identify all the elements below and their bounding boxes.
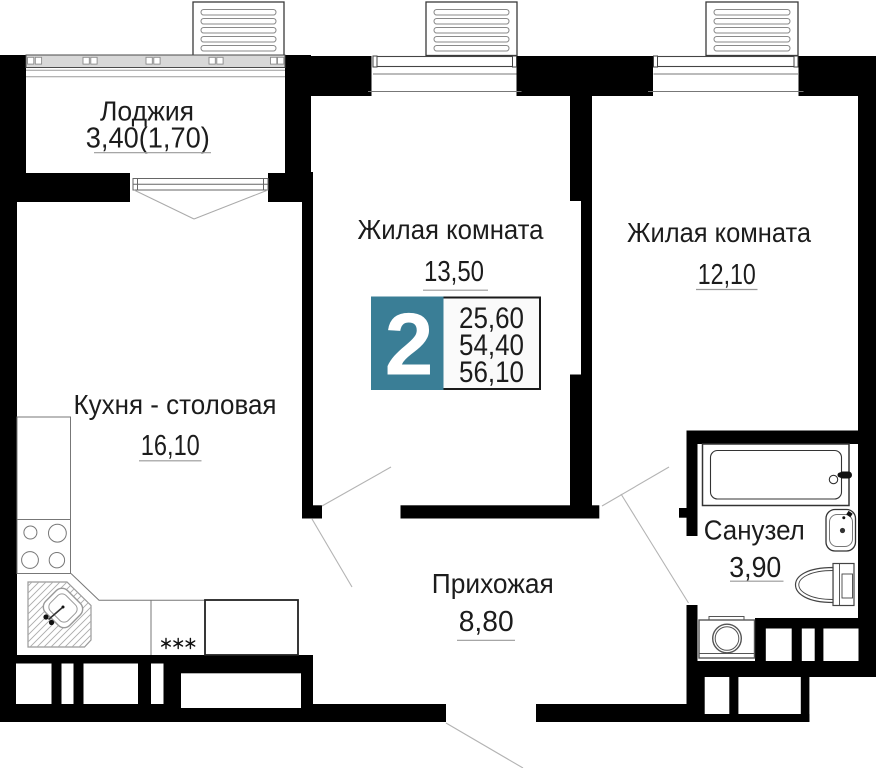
svg-text:8,80: 8,80 — [459, 606, 514, 638]
svg-text:16,10: 16,10 — [141, 430, 200, 462]
svg-text:13,50: 13,50 — [424, 256, 484, 288]
svg-text:Кухня - столовая: Кухня - столовая — [74, 389, 277, 420]
svg-text:56,10: 56,10 — [459, 356, 524, 389]
svg-text:3,40(1,70): 3,40(1,70) — [86, 123, 210, 155]
svg-text:12,10: 12,10 — [698, 259, 756, 291]
svg-text:2: 2 — [385, 295, 434, 394]
svg-text:Санузел: Санузел — [704, 515, 805, 546]
svg-text:3,90: 3,90 — [729, 552, 781, 584]
svg-text:Жилая комната: Жилая комната — [358, 214, 544, 245]
svg-text:Прихожая: Прихожая — [432, 568, 554, 599]
svg-text:Жилая комната: Жилая комната — [627, 217, 811, 248]
